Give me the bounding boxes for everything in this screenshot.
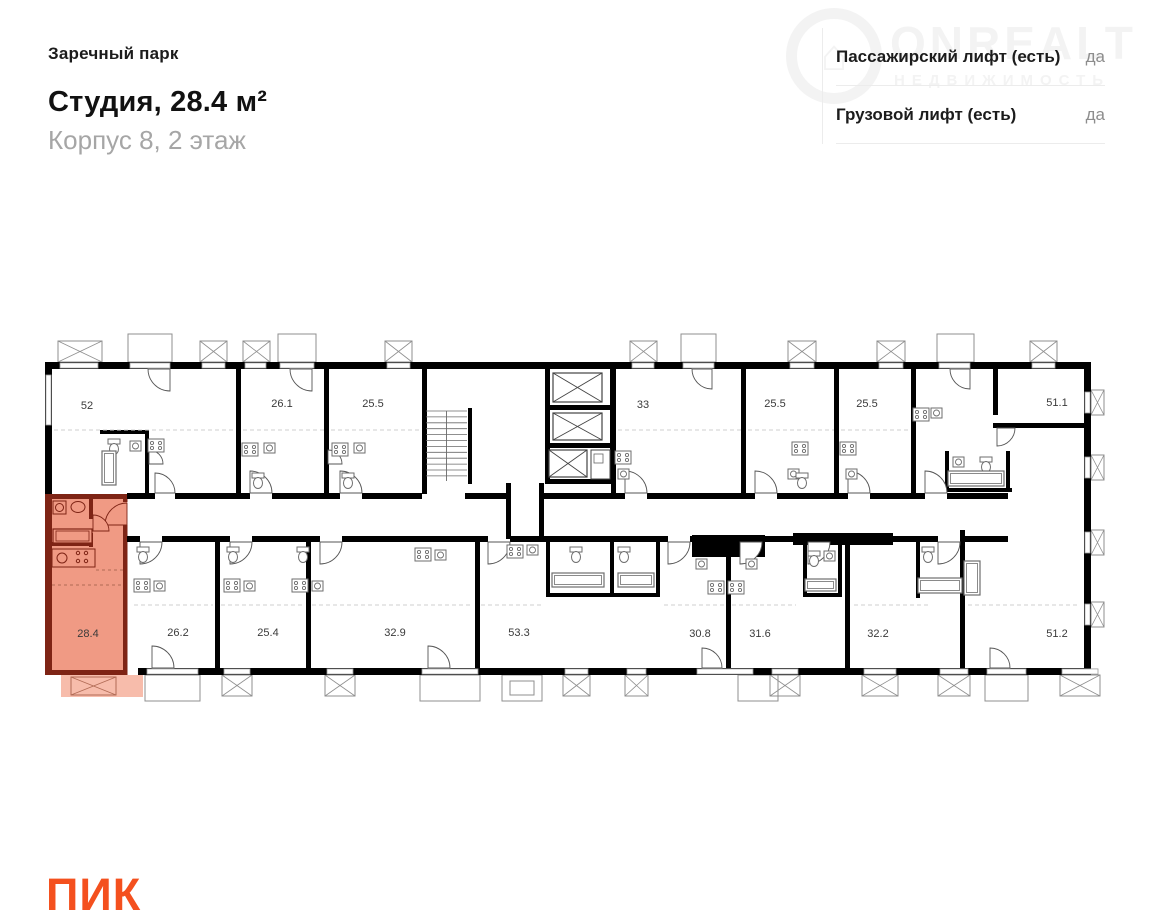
unit-area-label: 28.4 bbox=[77, 628, 98, 640]
lift-info-panel: Пассажирский лифт (есть) да Грузовой лиф… bbox=[822, 28, 1105, 144]
page-title: Студия, 28.4 м² bbox=[48, 86, 267, 119]
project-name: Заречный парк bbox=[48, 44, 267, 64]
unit-area-label: 51.2 bbox=[1046, 628, 1067, 640]
pik-logo[interactable]: ПИК bbox=[46, 869, 141, 921]
unit-area-label: 33 bbox=[637, 399, 649, 411]
unit-area-label: 25.5 bbox=[856, 398, 877, 410]
unit-area-label: 52 bbox=[81, 400, 93, 412]
cargo-lift-value: да bbox=[1086, 105, 1105, 125]
cargo-lift-row: Грузовой лифт (есть) да bbox=[836, 86, 1105, 144]
passenger-lift-value: да bbox=[1086, 47, 1105, 67]
page-subtitle: Корпус 8, 2 этаж bbox=[48, 125, 267, 156]
unit-area-label: 32.2 bbox=[867, 628, 888, 640]
unit-area-label: 30.8 bbox=[689, 628, 710, 640]
elevator-shafts bbox=[549, 373, 610, 479]
unit-area-label: 53.3 bbox=[508, 627, 529, 639]
unit-area-label: 32.9 bbox=[384, 627, 405, 639]
unit-area-label: 26.2 bbox=[167, 627, 188, 639]
unit-area-label: 26.1 bbox=[271, 398, 292, 410]
header: Заречный парк Студия, 28.4 м² Корпус 8, … bbox=[48, 44, 267, 156]
unit-area-label: 25.5 bbox=[362, 398, 383, 410]
passenger-lift-row: Пассажирский лифт (есть) да bbox=[836, 28, 1105, 86]
floor-plan: 5226.125.53325.525.551.128.426.225.432.9… bbox=[40, 333, 1110, 705]
unit-area-label: 31.6 bbox=[749, 628, 770, 640]
unit-area-label: 25.4 bbox=[257, 627, 278, 639]
unit-area-label: 51.1 bbox=[1046, 397, 1067, 409]
staircase bbox=[426, 411, 467, 481]
page: { "header": { "project": "Заречный парк"… bbox=[0, 0, 1152, 910]
unit-area-label: 25.5 bbox=[764, 398, 785, 410]
highlighted-unit[interactable] bbox=[45, 494, 128, 675]
cargo-lift-label: Грузовой лифт (есть) bbox=[836, 105, 1016, 125]
passenger-lift-label: Пассажирский лифт (есть) bbox=[836, 47, 1060, 67]
